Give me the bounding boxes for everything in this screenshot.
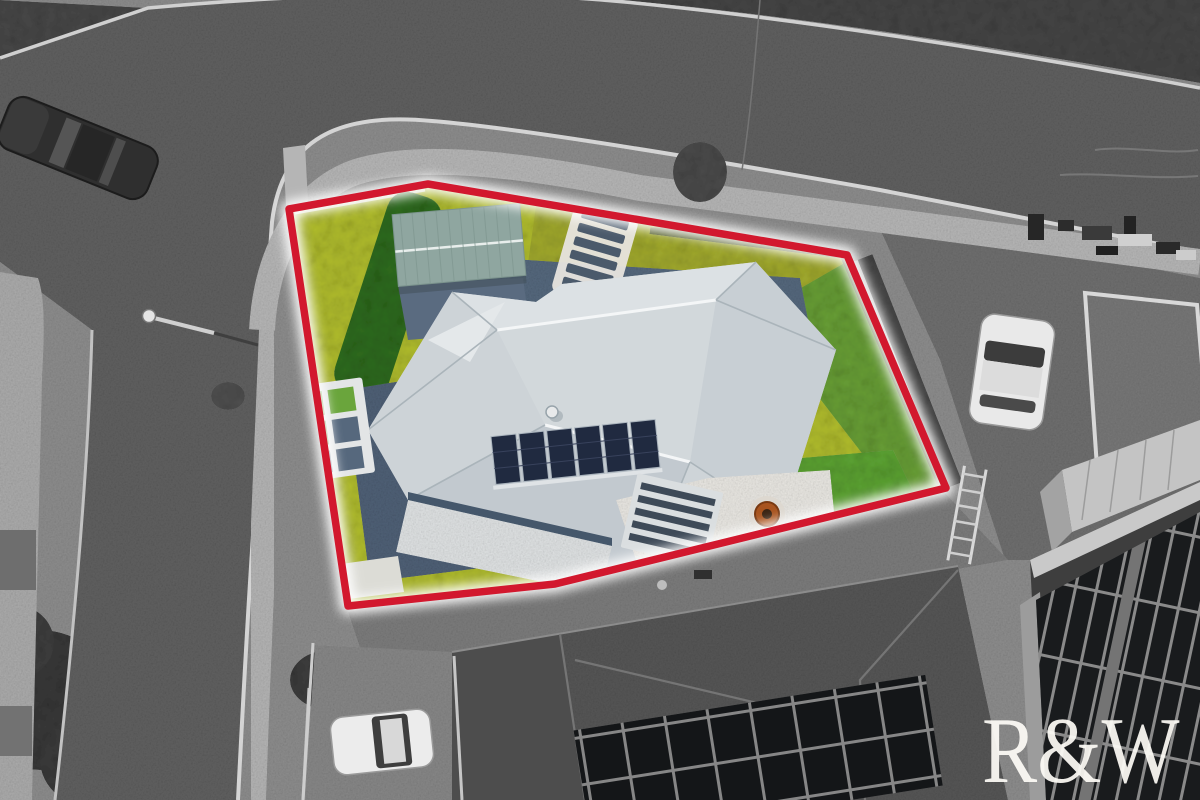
driveway-cut-2 — [0, 706, 32, 756]
retaining-wall — [283, 145, 308, 206]
watermark-logo: R&W — [982, 699, 1180, 800]
driveway-cut-1 — [0, 530, 36, 590]
aerial-photo: R&W — [0, 0, 1200, 800]
streetlight-lamp — [143, 310, 156, 323]
parked-car-white-bottom — [329, 708, 435, 776]
aerial-scene: R&W — [0, 0, 1200, 800]
parked-car-white-right — [968, 312, 1057, 431]
solar-panel — [491, 434, 521, 484]
verge-shrub — [211, 382, 245, 410]
garden-shed — [392, 204, 526, 295]
car-roof — [380, 718, 406, 764]
roof-vent-south — [657, 580, 667, 590]
roof-vent — [546, 406, 558, 418]
verge-tree — [673, 142, 727, 202]
